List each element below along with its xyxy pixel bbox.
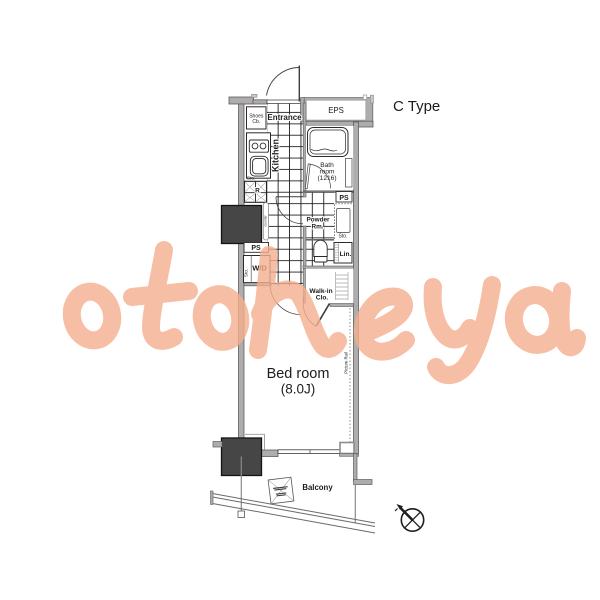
svg-text:Kitchen: Kitchen [270,139,280,172]
svg-text:Sto.: Sto. [244,269,249,277]
svg-text:R: R [255,188,260,195]
svg-text:Bed room: Bed room [267,366,330,382]
svg-text:Cb.: Cb. [252,119,260,125]
svg-text:Balcony: Balcony [302,483,333,492]
svg-text:PS: PS [251,245,261,252]
svg-text:(1216): (1216) [317,175,336,182]
svg-text:Picture Rail: Picture Rail [344,352,349,373]
svg-text:Clo.: Clo. [316,295,329,302]
svg-text:(8.0J): (8.0J) [281,382,316,397]
svg-text:Entrance: Entrance [267,113,302,122]
svg-text:C Type: C Type [393,98,440,115]
svg-text:Lin.: Lin. [340,251,352,258]
svg-text:Rm.: Rm. [311,223,323,230]
svg-text:Sto.: Sto. [339,233,348,239]
svg-text:Sto.: Sto. [247,176,256,182]
svg-text:Powder: Powder [306,216,330,223]
svg-text:EPS: EPS [328,106,344,115]
svg-text:PS: PS [339,195,349,202]
svg-text:counter: counter [263,214,267,226]
